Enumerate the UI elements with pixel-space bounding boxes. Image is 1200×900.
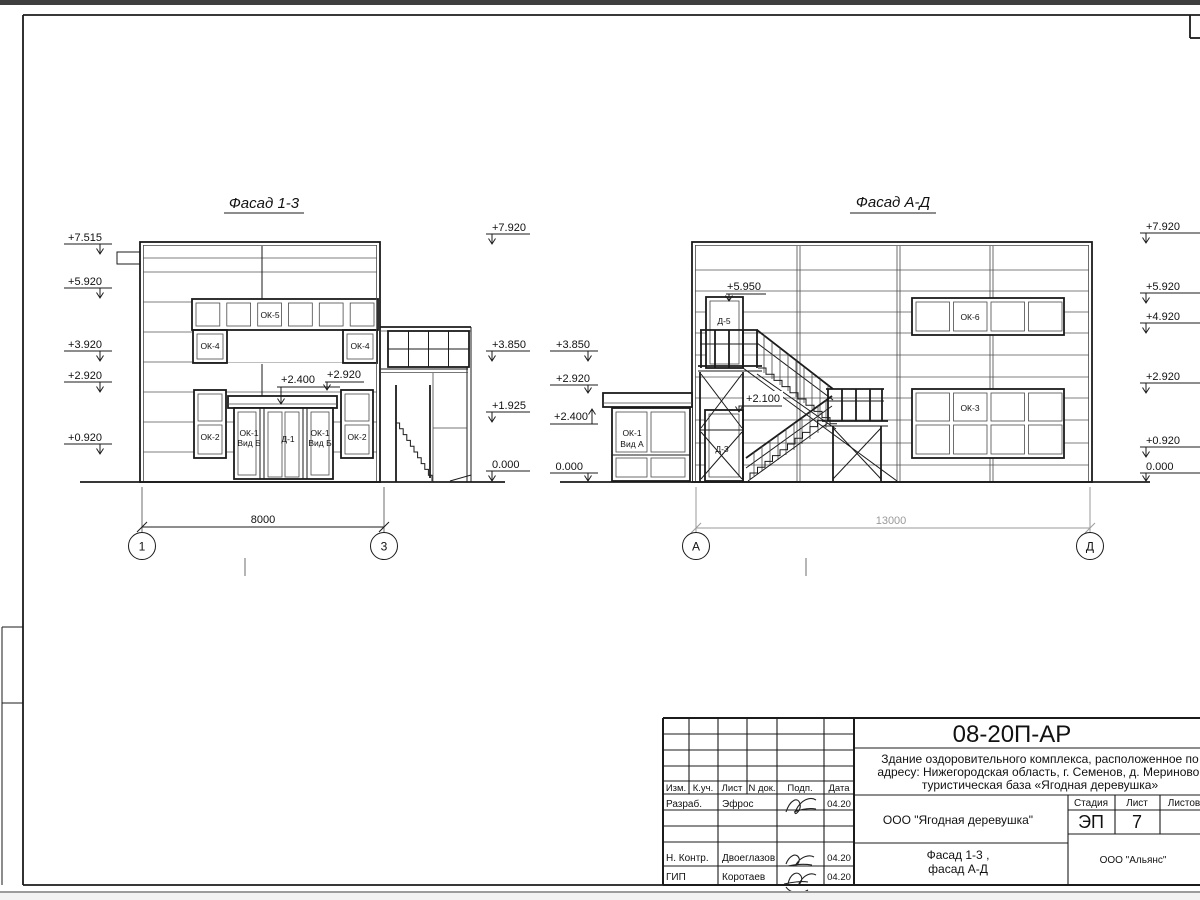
dimension-13000: 13000 — [691, 487, 1095, 533]
svg-text:+2.920: +2.920 — [556, 373, 590, 385]
elevation-marks-left: +7.515 +5.920 +3.920 +2.920 +0.920 — [64, 232, 112, 454]
svg-text:+2.920: +2.920 — [1146, 371, 1180, 383]
facade-title: Фасад А-Д — [856, 194, 931, 211]
window-label-ok4: ОК-4 — [350, 341, 369, 351]
stage-value: ЭП — [1078, 812, 1104, 832]
sheet-number: 7 — [1132, 812, 1142, 832]
frame-corner-box — [1190, 15, 1200, 38]
window-label-ok4: ОК-4 — [200, 341, 219, 351]
page-background — [0, 893, 1200, 900]
role-nkontr: Н. Контр. — [666, 853, 709, 864]
door-label-d5: Д-5 — [717, 316, 731, 326]
stair-tower — [380, 327, 471, 482]
svg-text:+3.850: +3.850 — [556, 339, 590, 351]
window-ok2-right: ОК-2 — [341, 390, 373, 458]
window-label-ok1: ОК-1 — [622, 428, 641, 438]
col-izm: Изм. — [666, 783, 686, 794]
sheets-label: Листов — [1168, 798, 1200, 809]
svg-text:0.000: 0.000 — [1146, 461, 1174, 473]
facade-title: Фасад 1-3 — [229, 195, 300, 212]
sheet-label: Лист — [1126, 798, 1148, 809]
date-nkontr: 04.20 — [827, 853, 851, 864]
window-band: ОК-5 ОК-4 ОК-4 — [192, 299, 378, 363]
entrance-doors: ОК-1 Вид Б Д-1 ОК-1 Вид Б — [234, 408, 333, 479]
window-label-vid-a: Вид А — [620, 439, 644, 449]
window-ok2-left: ОК-2 — [194, 390, 226, 458]
stage-label: Стадия — [1074, 798, 1108, 809]
elevation-marks-left: +3.850 +2.920 +2.400 0.000 — [550, 339, 598, 481]
svg-text:+4.920: +4.920 — [1146, 311, 1180, 323]
drawing-viewer: Фасад 1-3 ОК-5 — [0, 0, 1200, 900]
window-label-ok2: ОК-2 — [200, 432, 219, 442]
svg-text:+1.925: +1.925 — [492, 400, 526, 412]
company-name: ООО "Альянс" — [1100, 855, 1167, 866]
name-efros: Эфрос — [722, 798, 754, 810]
drawing-title-line2: фасад А-Д — [928, 862, 988, 876]
svg-text:+2.100: +2.100 — [746, 393, 780, 405]
external-staircase: Д-5 — [698, 281, 897, 481]
dimension-value: 13000 — [876, 515, 907, 527]
axis-bubble-1: 1 — [129, 533, 156, 560]
col-podp: Подп. — [787, 783, 812, 794]
document-code: 08-20П-АР — [953, 721, 1072, 748]
svg-text:+5.950: +5.950 — [727, 281, 761, 293]
window-label-ok1: ОК-1 — [239, 428, 258, 438]
svg-text:+2.400: +2.400 — [554, 411, 588, 423]
client-name: ООО "Ягодная деревушка" — [883, 813, 1033, 827]
date-razrab: 04.20 — [827, 799, 851, 810]
svg-text:+2.400: +2.400 — [281, 374, 315, 386]
svg-text:+2.920: +2.920 — [327, 369, 361, 381]
window-label-ok2: ОК-2 — [347, 432, 366, 442]
svg-text:А: А — [692, 540, 700, 554]
svg-text:0.000: 0.000 — [555, 461, 583, 473]
dimension-8000: 8000 — [137, 487, 389, 533]
svg-text:+5.920: +5.920 — [68, 276, 102, 288]
col-kuch: К.уч. — [693, 783, 714, 794]
svg-text:+7.515: +7.515 — [68, 232, 102, 244]
svg-text:+7.920: +7.920 — [1146, 221, 1180, 233]
elevation-marks-right: +7.920 +5.920 +4.920 +2.920 +0.920 0.000 — [1140, 221, 1200, 481]
elevation-marks-right: +7.920 +3.850 +1.925 0.000 — [486, 222, 530, 481]
title-block: Изм. К.уч. Лист N док. Подп. Дата Разраб… — [655, 712, 1200, 892]
svg-text:1: 1 — [139, 540, 146, 554]
svg-text:+3.850: +3.850 — [492, 339, 526, 351]
axis-bubble-3: 3 — [371, 533, 398, 560]
drawing-sheet: Фасад 1-3 ОК-5 — [0, 5, 1200, 891]
project-description-line2: адресу: Нижегородская область, г. Семено… — [877, 765, 1200, 779]
axis-bubble-d: Д — [1077, 533, 1104, 560]
project-description-line1: Здание оздоровительного комплекса, распо… — [881, 752, 1199, 766]
facade-a-d-drawing: Фасад А-Д — [545, 190, 1200, 585]
annotation-parapet-level: +2.920 — [324, 369, 365, 390]
door-label-d1: Д-1 — [281, 434, 295, 444]
name-korotaev: Коротаев — [722, 872, 765, 883]
window-label-ok5: ОК-5 — [260, 310, 279, 320]
svg-text:+7.920: +7.920 — [492, 222, 526, 234]
name-dvoeglazov: Двоеглазов — [722, 853, 775, 864]
svg-text:+0.920: +0.920 — [68, 432, 102, 444]
date-gip: 04.20 — [827, 872, 851, 883]
dimension-value: 8000 — [251, 514, 275, 526]
svg-text:3: 3 — [381, 540, 388, 554]
role-razrab: Разраб. — [666, 798, 702, 810]
svg-text:+0.920: +0.920 — [1146, 435, 1180, 447]
role-gip: ГИП — [666, 872, 686, 883]
window-label-vid-b: Вид Б — [308, 438, 332, 448]
window-ok6: ОК-6 — [912, 298, 1064, 335]
svg-text:+2.920: +2.920 — [68, 370, 102, 382]
vestibule-ok1-vid-a: ОК-1 Вид А — [603, 393, 692, 482]
frame-margin-cells — [2, 627, 23, 885]
col-list: Лист — [722, 783, 743, 794]
project-description-line3: туристическая база «Ягодная деревушка» — [922, 778, 1159, 792]
drawing-title-line1: Фасад 1-3 , — [927, 848, 990, 862]
window-ok3: ОК-3 — [912, 389, 1064, 458]
window-label-ok3: ОК-3 — [960, 403, 979, 413]
svg-text:+5.920: +5.920 — [1146, 281, 1180, 293]
axis-bubble-a: А — [683, 533, 710, 560]
col-ndoc: N док. — [748, 783, 775, 794]
window-label-vid-b: Вид Б — [237, 438, 261, 448]
facade-1-3-drawing: Фасад 1-3 ОК-5 — [55, 190, 530, 585]
svg-text:0.000: 0.000 — [492, 459, 520, 471]
svg-text:Д: Д — [1086, 540, 1094, 554]
col-data: Дата — [828, 783, 850, 794]
signature-scribbles — [784, 798, 816, 892]
window-label-ok1: ОК-1 — [310, 428, 329, 438]
svg-text:+3.920: +3.920 — [68, 339, 102, 351]
window-label-ok6: ОК-6 — [960, 312, 979, 322]
